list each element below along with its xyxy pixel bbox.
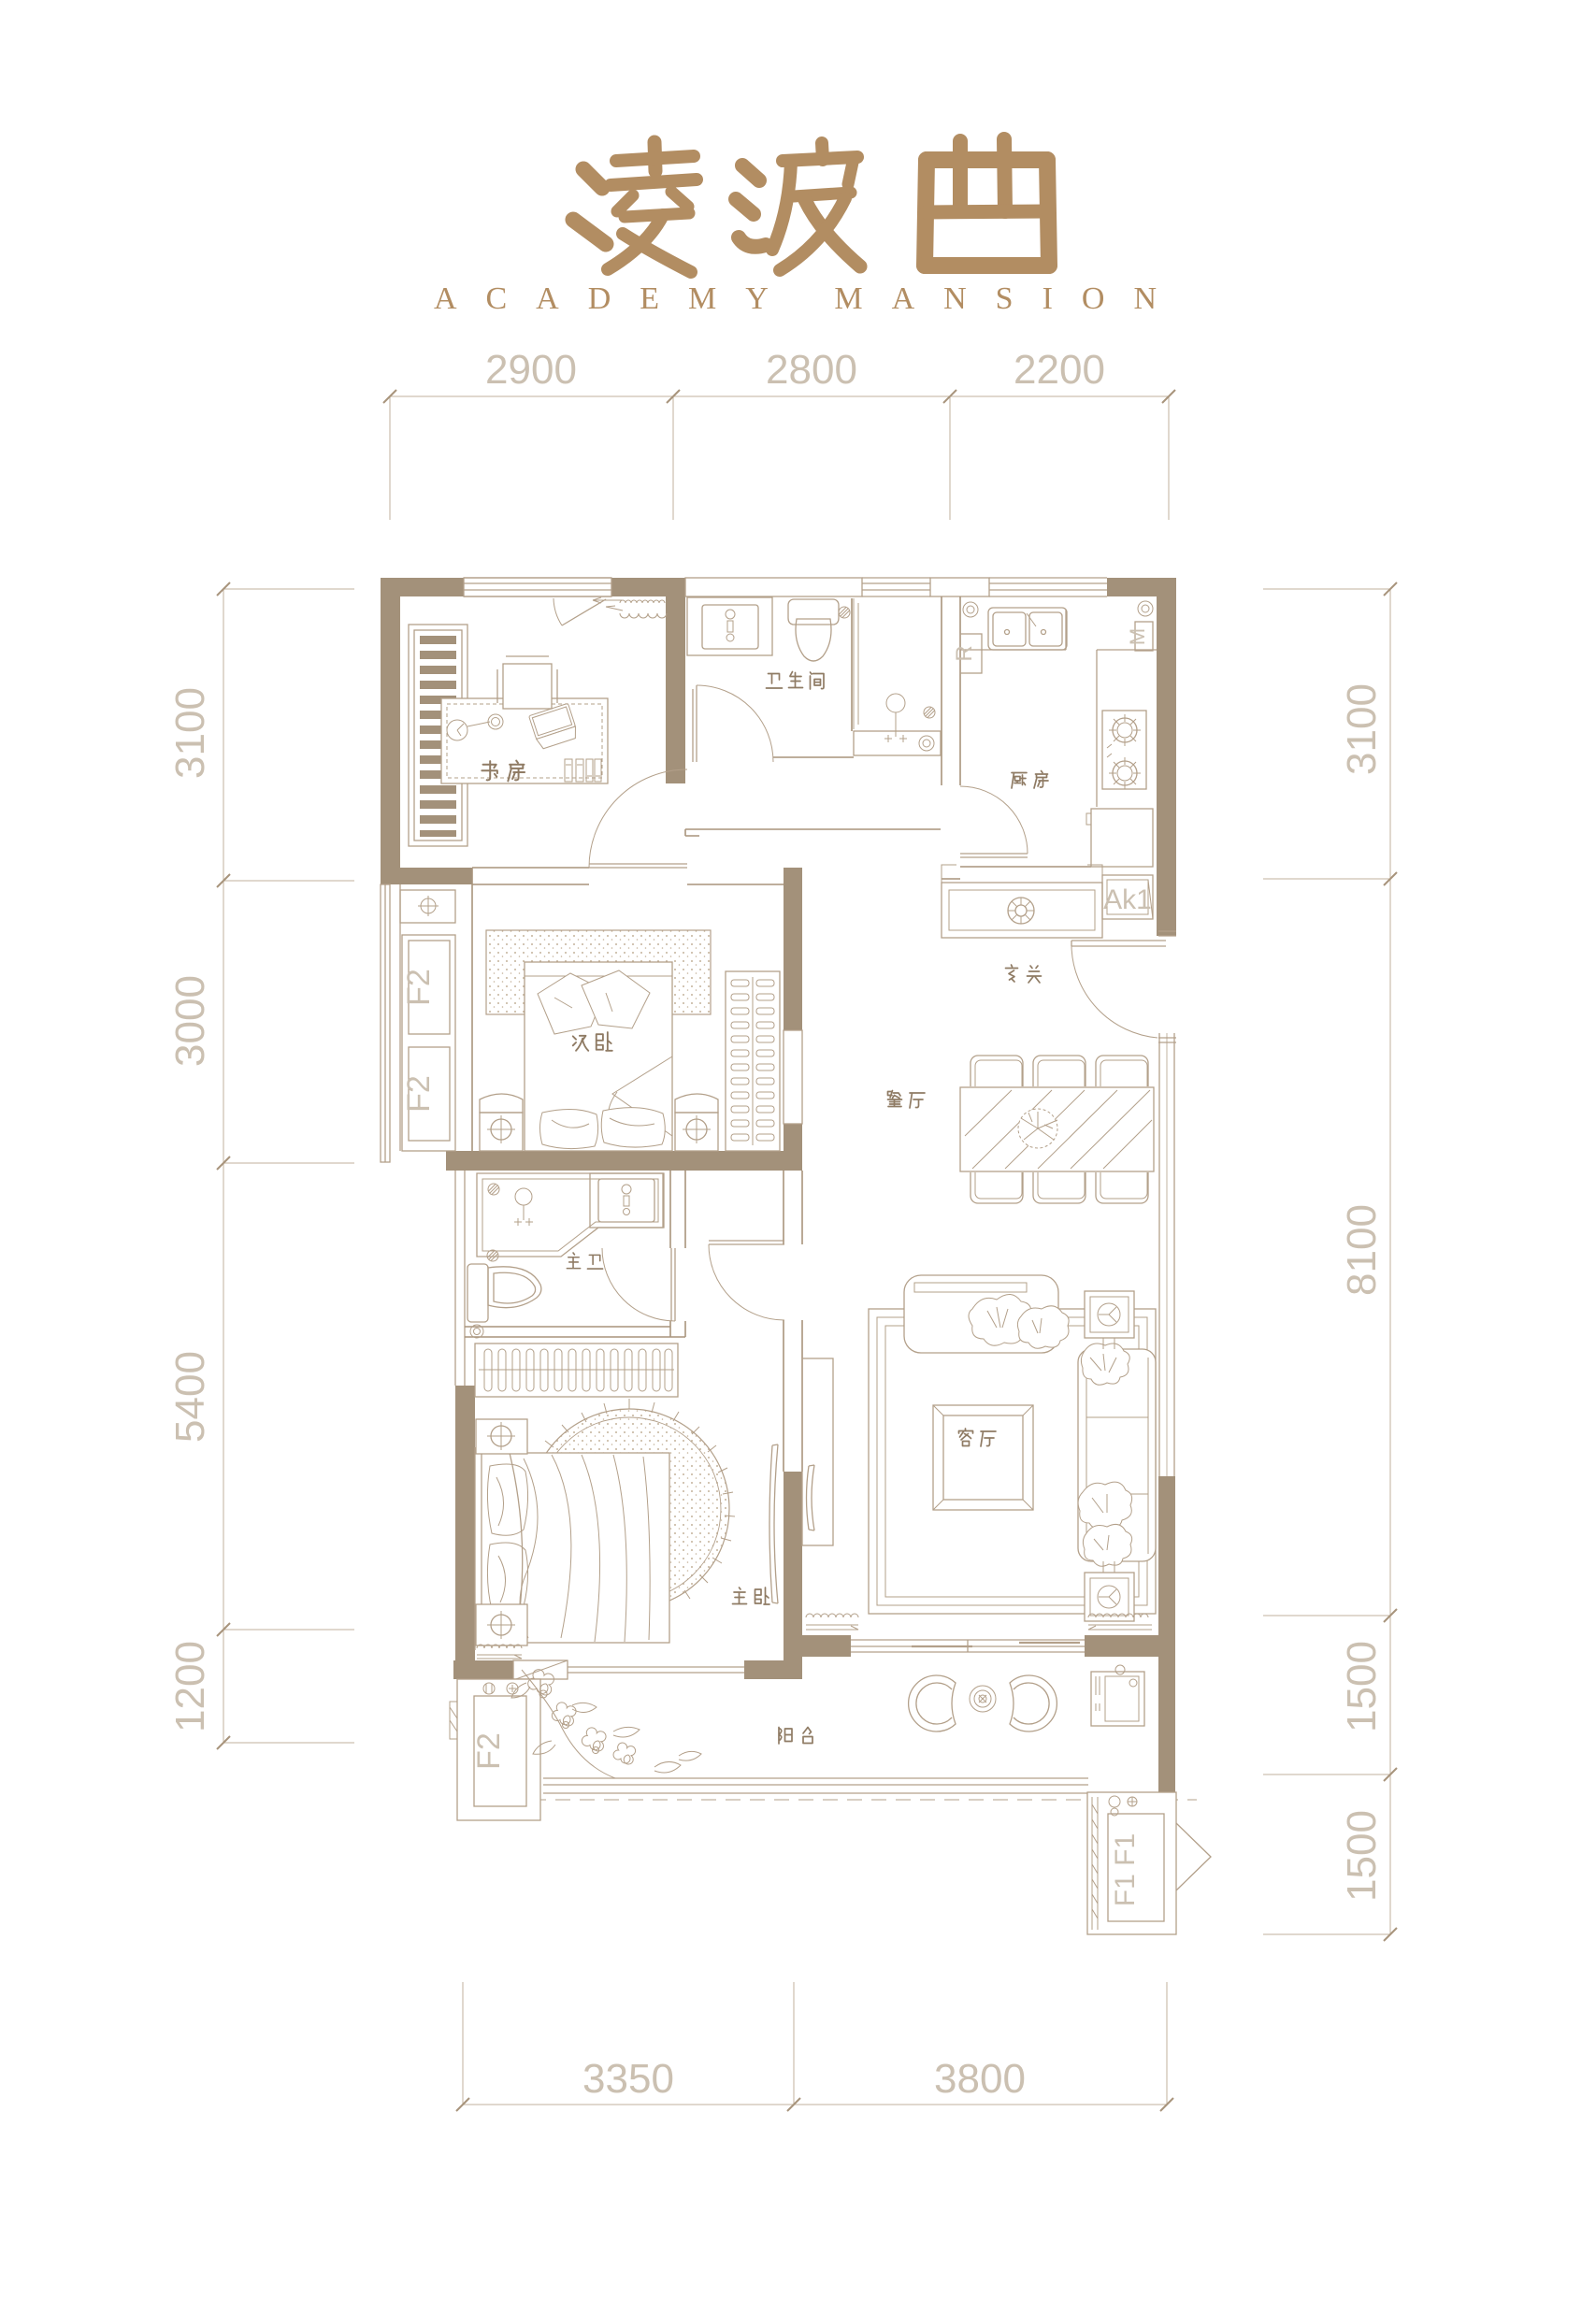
svg-text:M: M: [1126, 628, 1149, 645]
svg-text:F2: F2: [401, 969, 437, 1006]
svg-text:R: R: [952, 645, 977, 661]
svg-text:2200: 2200: [1014, 347, 1105, 393]
svg-text:1500: 1500: [1339, 1810, 1385, 1902]
svg-text:3800: 3800: [934, 2056, 1026, 2102]
svg-text:3100: 3100: [167, 687, 213, 779]
svg-text:3350: 3350: [582, 2056, 674, 2102]
svg-text:3000: 3000: [167, 975, 213, 1067]
svg-text:F2: F2: [401, 1075, 437, 1113]
svg-text:ACADEMY MANSION: ACADEMY MANSION: [434, 281, 1186, 316]
svg-text:3100: 3100: [1339, 683, 1385, 775]
svg-text:F1 F1: F1 F1: [1110, 1833, 1141, 1906]
svg-text:2900: 2900: [485, 347, 577, 393]
svg-text:5400: 5400: [167, 1351, 213, 1443]
svg-text:Ak1: Ak1: [1103, 884, 1152, 915]
svg-text:2800: 2800: [766, 347, 857, 393]
svg-text:F2: F2: [471, 1732, 507, 1770]
svg-text:1500: 1500: [1339, 1641, 1385, 1732]
svg-text:8100: 8100: [1339, 1204, 1385, 1296]
svg-text:1200: 1200: [167, 1641, 213, 1732]
